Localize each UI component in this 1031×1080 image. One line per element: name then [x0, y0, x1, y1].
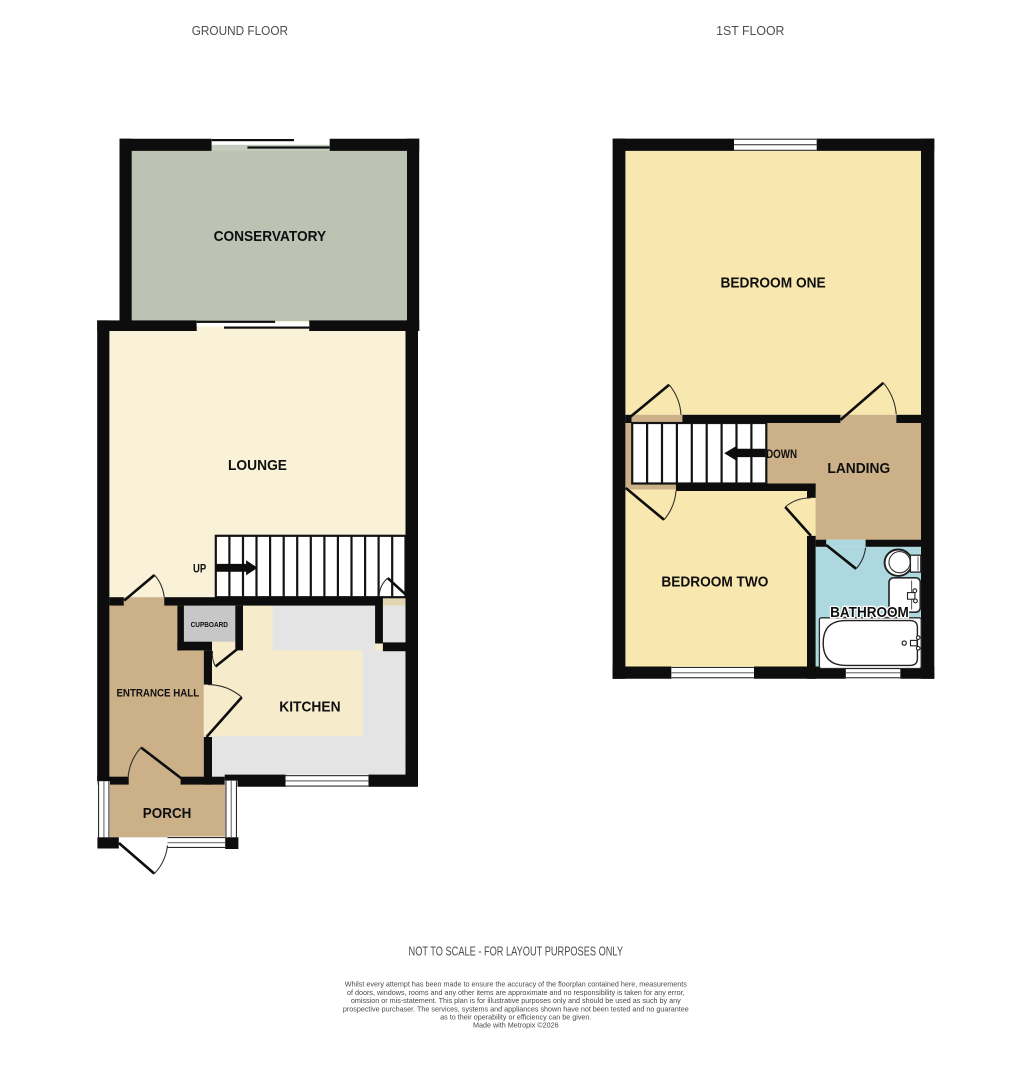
- svg-text:BATHROOM: BATHROOM: [830, 604, 909, 621]
- svg-text:KITCHEN: KITCHEN: [279, 698, 340, 715]
- svg-text:LOUNGE: LOUNGE: [228, 457, 287, 474]
- svg-text:DOWN: DOWN: [766, 447, 797, 461]
- svg-text:PORCH: PORCH: [143, 805, 192, 822]
- svg-text:1ST FLOOR: 1ST FLOOR: [716, 24, 784, 38]
- svg-text:LANDING: LANDING: [827, 460, 890, 477]
- svg-text:GROUND FLOOR: GROUND FLOOR: [192, 24, 288, 38]
- svg-text:ENTRANCE HALL: ENTRANCE HALL: [116, 687, 199, 699]
- svg-text:Made with Metropix ©2026: Made with Metropix ©2026: [473, 1021, 559, 1030]
- svg-text:BEDROOM TWO: BEDROOM TWO: [661, 574, 768, 591]
- svg-text:CONSERVATORY: CONSERVATORY: [214, 228, 327, 245]
- svg-text:BEDROOM ONE: BEDROOM ONE: [721, 274, 826, 291]
- svg-text:CUPBOARD: CUPBOARD: [191, 620, 229, 629]
- svg-text:NOT TO SCALE - FOR LAYOUT PURP: NOT TO SCALE - FOR LAYOUT PURPOSES ONLY: [409, 945, 624, 959]
- svg-text:UP: UP: [193, 561, 206, 575]
